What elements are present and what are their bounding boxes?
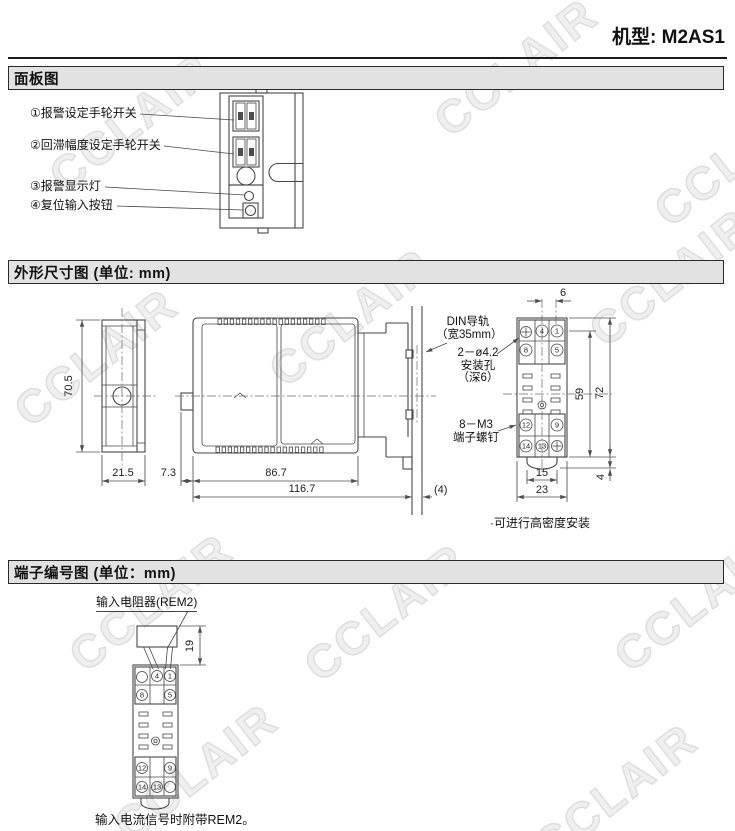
- terminal-number: 9: [555, 421, 559, 430]
- panel-label-reset-button: ④复位输入按钮: [30, 199, 113, 212]
- screw-hole: [165, 782, 176, 793]
- terminal-number: 12: [138, 764, 146, 773]
- rear-view-drawing: 4 1 8 5 12 9 14 13: [503, 299, 612, 472]
- callout-line: 2－ø4.2: [450, 347, 506, 360]
- callout-line: 安装孔: [450, 360, 506, 373]
- callout-din-rail: DIN导轨 （宽35mm）: [436, 316, 500, 341]
- thumbwheel-switch-1: [233, 101, 259, 131]
- resistor-leads: [144, 647, 173, 669]
- terminal-drawing: 19 4 1 8 5: [133, 611, 206, 809]
- screw-hole: [137, 672, 148, 683]
- dim-front-width: 21.5: [112, 467, 133, 479]
- dim-resistor-height: 19: [184, 640, 196, 652]
- section-title: 面板图: [9, 68, 59, 89]
- section-header-panel: 面板图: [8, 66, 724, 90]
- density-note: ·可进行高密度安装: [490, 514, 590, 531]
- rail-latch: [141, 798, 169, 809]
- dim-latch-height: 4: [595, 474, 607, 480]
- section-header-outline: 外形尺寸图 (单位: mm): [8, 260, 724, 284]
- alarm-lamp-circle: [245, 192, 254, 201]
- reset-button-circle: [246, 206, 256, 216]
- dim-mount-height: 59: [574, 388, 586, 400]
- mounting-hole-top: [521, 327, 532, 338]
- terminal-number: 13: [153, 783, 161, 792]
- callout-mounting-hole: 2－ø4.2 安装孔 （深6）: [450, 347, 506, 385]
- callout-line: DIN导轨: [436, 316, 500, 329]
- terminal-number: 5: [168, 691, 172, 700]
- section-title: 端子编号图 (单位：mm): [9, 562, 176, 583]
- dim-panel-offset: 7.3: [161, 467, 176, 479]
- callout-line: 端子螺钉: [446, 432, 506, 445]
- terminal-number: 4: [155, 672, 159, 681]
- dim-front-height: 70.5: [63, 375, 75, 396]
- dim-body-width: 86.7: [265, 467, 286, 479]
- resistor-label: 输入电阻器(REM2): [96, 593, 197, 612]
- model-label: 机型: M2AS1: [612, 22, 725, 49]
- socket-middle-slots: [139, 712, 172, 749]
- terminal-footnote: 输入电流信号时附带REM2。: [95, 809, 255, 828]
- front-view-drawing: [94, 308, 158, 465]
- terminal-number: 9: [168, 764, 172, 773]
- panel-knob-circle: [237, 167, 255, 185]
- terminal-number: 8: [140, 691, 144, 700]
- dim-socket-width: 23: [536, 484, 548, 496]
- dim-total-width: 116.7: [289, 483, 316, 495]
- terminal-number: 12: [522, 421, 530, 430]
- section-header-terminal: 端子编号图 (单位：mm): [8, 560, 724, 584]
- dim-hole-pitch: 6: [560, 287, 566, 299]
- thumbwheel-switch-2: [233, 137, 259, 167]
- callout-terminal-screw: 8－M3 端子螺钉: [446, 419, 506, 444]
- dim-latch-width: 15: [536, 467, 548, 479]
- socket-block-bottom: 12 9 14 13: [135, 757, 176, 796]
- section-title: 外形尺寸图 (单位: mm): [9, 262, 171, 283]
- panel-label-alarm-lamp: ③报警显示灯: [30, 180, 101, 193]
- panel-label-hysteresis-switch: ②回滞幅度设定手轮开关: [30, 139, 161, 152]
- callout-line: （深6）: [450, 372, 506, 385]
- dimension-annotations: 70.5 21.5 7.3 86.7 116.7 (4) 6: [63, 287, 616, 502]
- datasheet-page: CCLAIR CCLAIR CCLAIR CCLAIR CCLAIR CCLAI…: [0, 0, 735, 831]
- terminal-number: 14: [138, 783, 146, 792]
- dim-socket-height: 72: [594, 387, 606, 399]
- terminal-number: 14: [522, 442, 530, 451]
- dim-rail-extra: (4): [434, 484, 447, 496]
- panel-label-alarm-switch: ①报警设定手轮开关: [30, 107, 137, 120]
- technical-drawing: 4 1 8 5 12 9 14 13: [0, 0, 735, 831]
- terminal-number: 1: [168, 672, 172, 681]
- socket-block-top: 4 1 8 5: [135, 667, 176, 704]
- terminal-number: 1: [555, 327, 559, 336]
- panel-leader-lines: [105, 114, 245, 210]
- terminal-number: 8: [524, 346, 528, 355]
- callout-line: 8－M3: [446, 419, 506, 432]
- mounting-hole-bottom: [552, 441, 563, 452]
- vent-slots-bottom: [216, 447, 323, 453]
- input-resistor-box: [137, 626, 177, 647]
- callout-line: （宽35mm）: [436, 329, 500, 342]
- top-rule: [8, 57, 727, 59]
- terminal-number: 5: [555, 346, 559, 355]
